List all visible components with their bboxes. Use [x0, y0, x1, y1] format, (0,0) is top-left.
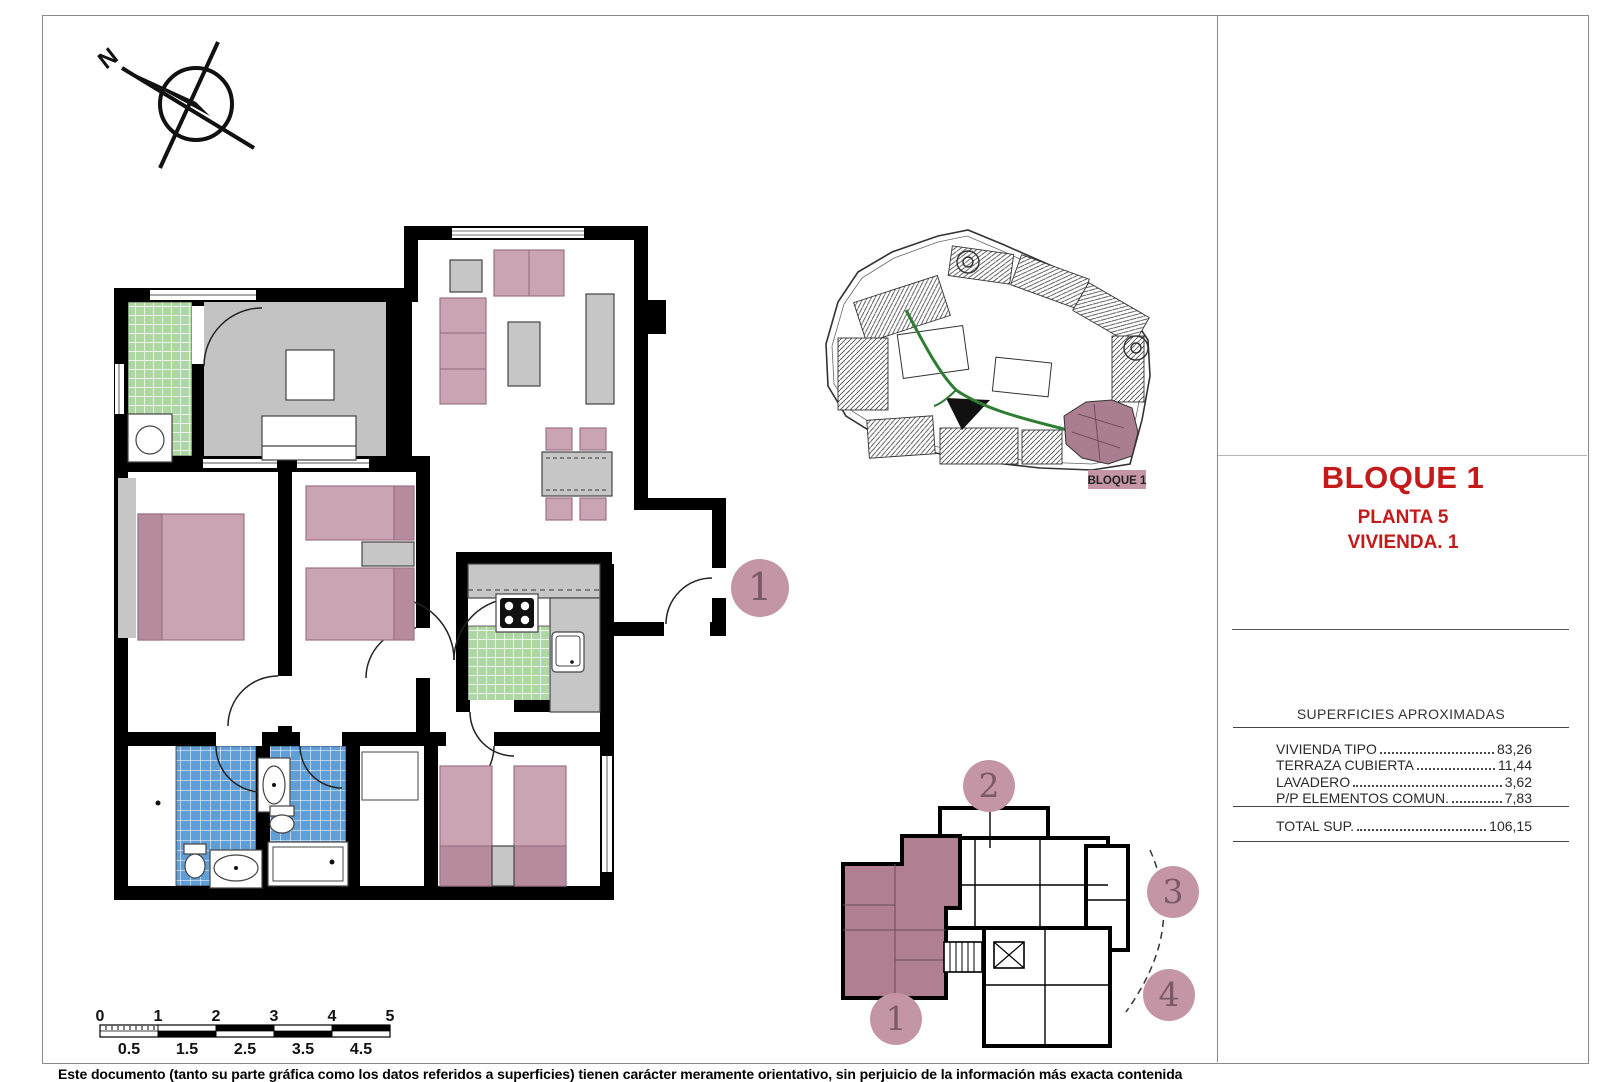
plan-sheet: { "title_block": { "title": "BLOQUE 1", …	[0, 0, 1620, 1080]
chair	[580, 428, 606, 450]
title-block-rule-mid	[1232, 629, 1569, 630]
total-value: 106,15	[1489, 818, 1532, 834]
bed-foot	[440, 846, 492, 886]
svg-text:3: 3	[270, 1008, 279, 1025]
bench	[262, 416, 356, 460]
total-label: TOTAL SUP.	[1276, 818, 1354, 834]
bed	[306, 568, 394, 640]
sheet-title: BLOQUE 1	[1218, 460, 1588, 496]
site-plan: BLOQUE 1	[815, 225, 1160, 500]
closet	[118, 478, 136, 638]
chair	[580, 498, 606, 520]
chair	[546, 428, 572, 450]
svg-text:0: 0	[96, 1008, 105, 1025]
dot-leader	[1353, 784, 1502, 787]
row-label: P/P ELEMENTOS COMUN.	[1276, 790, 1449, 806]
areas-table-header: SUPERFICIES APROXIMADAS	[1233, 706, 1569, 722]
coffee-table	[508, 322, 540, 386]
bed	[306, 486, 394, 540]
dot-leader	[1452, 800, 1502, 803]
table-row: LAVADERO 3,62	[1276, 773, 1532, 789]
areas-table-rows: VIVIENDA TIPO 83,26 TERRAZA CUBIERTA 11,…	[1276, 741, 1532, 806]
svg-text:2.5: 2.5	[234, 1041, 256, 1058]
key-plan-unit1-highlight	[843, 836, 960, 998]
bed-headboard	[394, 568, 414, 640]
toilet-tank	[184, 844, 206, 854]
row-value: 83,26	[1497, 741, 1532, 757]
bed-foot	[514, 846, 566, 886]
site-label: BLOQUE 1	[1088, 475, 1147, 487]
key-plan: 1 2 3 4	[790, 730, 1200, 1050]
unit-number: 1	[748, 565, 772, 609]
stove-top	[500, 598, 534, 628]
compass-cross-line	[160, 42, 218, 168]
dot-leader	[1380, 751, 1494, 754]
row-value: 3,62	[1505, 774, 1532, 790]
chair	[546, 498, 572, 520]
scale-minor-labels: 0.5 1.5 2.5 3.5 4.5	[118, 1041, 372, 1058]
row-value: 11,44	[1498, 757, 1532, 773]
nightstand	[362, 542, 414, 566]
areas-table-rule-2	[1233, 806, 1569, 807]
key-unit-1: 1	[886, 999, 907, 1038]
table-row: VIVIENDA TIPO 83,26	[1276, 741, 1532, 757]
key-unit-2: 2	[979, 766, 1000, 805]
unit-number-circle: 1	[731, 559, 789, 617]
kitchen-green-tiles	[468, 626, 550, 704]
dot-leader	[1417, 767, 1495, 770]
svg-text:4.5: 4.5	[350, 1041, 372, 1058]
compass-needle-line	[122, 68, 254, 148]
north-compass: N	[80, 30, 280, 180]
row-label: LAVADERO	[1276, 774, 1350, 790]
washing-machine	[128, 414, 172, 462]
key-unit-3: 3	[1163, 872, 1184, 911]
svg-text:1.5: 1.5	[176, 1041, 198, 1058]
compass-north-label: N	[93, 43, 123, 75]
tv-unit	[586, 294, 614, 404]
toilet	[270, 815, 294, 833]
sheet-subtitle-vivienda: VIVIENDA. 1	[1218, 532, 1588, 554]
main-floor-plan: 1	[100, 200, 800, 920]
table-square	[286, 350, 334, 400]
row-label: TERRAZA CUBIERTA	[1276, 757, 1414, 773]
scale-major-labels: 0 1 2 3 4 5	[96, 1008, 395, 1025]
sofa	[440, 298, 486, 404]
areas-table-rule-3	[1233, 841, 1569, 842]
table-row: P/P ELEMENTOS COMUN. 7,83	[1276, 790, 1532, 806]
nightstand	[492, 846, 514, 886]
key-plan-stair	[944, 942, 982, 972]
bed-pillow	[138, 514, 162, 640]
hall-closet	[362, 752, 418, 800]
areas-table-rule-1	[1233, 727, 1569, 728]
areas-table-total: TOTAL SUP. 106,15	[1276, 818, 1532, 834]
key-plan-elevator	[994, 942, 1024, 968]
table-row: TERRAZA CUBIERTA 11,44	[1276, 757, 1532, 773]
side-table	[450, 260, 482, 292]
svg-text:2: 2	[212, 1008, 221, 1025]
scale-bar-body	[100, 1025, 390, 1037]
kitchen-counter	[468, 564, 600, 598]
toilet	[185, 854, 205, 878]
row-value: 7,83	[1505, 790, 1532, 806]
row-label: VIVIENDA TIPO	[1276, 741, 1377, 757]
dot-leader	[1357, 828, 1486, 831]
svg-text:5: 5	[386, 1008, 395, 1025]
bed-headboard	[394, 486, 414, 540]
key-unit-4: 4	[1159, 975, 1180, 1014]
svg-text:1: 1	[154, 1008, 163, 1025]
svg-text:3.5: 3.5	[292, 1041, 314, 1058]
svg-text:4: 4	[328, 1008, 337, 1025]
title-block-rule-top	[1218, 455, 1587, 456]
sheet-subtitle-planta: PLANTA 5	[1218, 507, 1588, 529]
bathtub	[268, 842, 348, 886]
svg-text:0.5: 0.5	[118, 1041, 140, 1058]
